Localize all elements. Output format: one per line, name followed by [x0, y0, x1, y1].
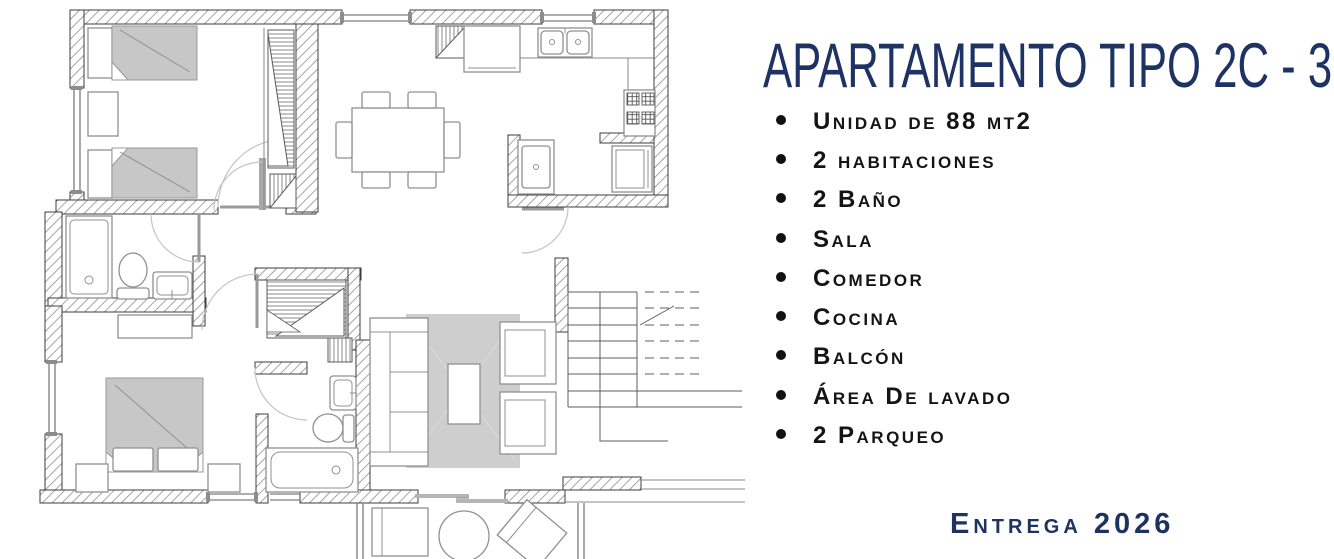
floor-plan	[0, 0, 760, 559]
toilet-icon	[313, 414, 354, 442]
feature-label: Área De lavado	[813, 383, 1013, 411]
list-item: Cocina	[776, 298, 1032, 337]
coffee-table-icon	[448, 364, 480, 424]
chair-icon	[408, 92, 436, 108]
bullet-icon	[776, 350, 786, 360]
chair-icon	[336, 122, 352, 158]
single-bed-icon	[88, 148, 197, 198]
closet-bedroom1	[264, 28, 296, 210]
bullet-icon	[776, 272, 786, 282]
dresser-icon	[118, 315, 192, 338]
bullet-icon	[776, 390, 786, 400]
bullet-icon	[776, 233, 786, 243]
bullet-icon	[776, 154, 786, 164]
bullet-icon	[776, 429, 786, 439]
bathroom-1	[66, 216, 192, 299]
feature-label: Comedor	[813, 265, 924, 293]
feature-label: Sala	[813, 226, 874, 254]
list-item: 2 Parqueo	[776, 416, 1032, 455]
laundry-sink-icon	[518, 140, 554, 194]
door-laundry	[522, 207, 568, 253]
living-room	[370, 314, 556, 468]
list-item: Sala	[776, 220, 1032, 259]
sink-icon	[330, 376, 357, 410]
double-sink-icon	[538, 28, 592, 57]
fridge-icon	[464, 26, 520, 72]
bathtub-icon	[266, 448, 358, 492]
flyer: APARTAMENTO TIPO 2C - 3C Unidad de 88 mt…	[0, 0, 1334, 559]
pantry-icon	[436, 26, 464, 58]
nightstand-icon	[88, 92, 118, 136]
balcony-chair-icon	[497, 500, 566, 559]
window-bottom-bathroom2	[270, 494, 300, 500]
delivery-year: Entrega 2026	[950, 508, 1174, 541]
laundry-area	[518, 140, 554, 194]
nightstand-icon	[76, 464, 108, 492]
double-bed-icon	[106, 378, 203, 472]
sliding-door-balcony	[415, 494, 508, 503]
window-top-left	[340, 12, 412, 23]
list-item: Balcón	[776, 338, 1032, 377]
dining-table-icon	[352, 108, 444, 172]
chair-icon	[362, 92, 390, 108]
list-item: Comedor	[776, 259, 1032, 298]
bedroom-2	[76, 315, 240, 492]
stove-icon	[624, 90, 655, 136]
feature-label: Cocina	[813, 304, 900, 332]
window-left-bedroom2	[46, 360, 57, 436]
door-bedroom2	[202, 274, 258, 330]
feature-label: 2 Baño	[813, 186, 903, 214]
window-left-bedroom1	[71, 86, 82, 194]
door-closet-bedroom1	[214, 158, 266, 210]
walk-in-closet	[267, 280, 352, 362]
sink-icon	[153, 272, 192, 299]
door-bathroom1	[151, 214, 199, 262]
dining-table-set	[336, 92, 460, 188]
list-item: 2 Baño	[776, 181, 1032, 220]
bathroom-2	[266, 376, 358, 492]
balcony-chair-icon	[372, 508, 428, 556]
bullet-icon	[776, 193, 786, 203]
balcony-table-icon	[439, 511, 489, 559]
single-bed-icon	[88, 26, 197, 80]
armchair-icon	[500, 392, 556, 454]
feature-label: 2 Parqueo	[813, 422, 946, 450]
oven-icon	[612, 146, 652, 192]
chair-icon	[408, 172, 436, 188]
bullet-icon	[776, 311, 786, 321]
shower-icon	[66, 216, 112, 298]
list-item: 2 habitaciones	[776, 141, 1032, 180]
feature-label: 2 habitaciones	[813, 147, 996, 175]
toilet-icon	[117, 253, 149, 299]
feature-label: Unidad de 88 mt2	[813, 108, 1032, 136]
nightstand-icon	[208, 464, 240, 492]
door-bathroom2	[255, 368, 307, 420]
sofa-icon	[370, 318, 428, 466]
page-title: APARTAMENTO TIPO 2C - 3C	[763, 28, 1298, 102]
armchair-icon	[500, 322, 556, 384]
list-item: Área De lavado	[776, 377, 1032, 416]
feature-list: Unidad de 88 mt2 2 habitaciones 2 Baño S…	[776, 102, 1032, 456]
window-bottom-bedroom2	[206, 492, 258, 502]
chair-icon	[362, 172, 390, 188]
bullet-icon	[776, 115, 786, 125]
feature-label: Balcón	[813, 343, 906, 371]
list-item: Unidad de 88 mt2	[776, 102, 1032, 141]
balcony	[357, 500, 584, 559]
stairs	[568, 292, 742, 441]
window-top-right	[540, 12, 596, 23]
chair-icon	[444, 122, 460, 158]
